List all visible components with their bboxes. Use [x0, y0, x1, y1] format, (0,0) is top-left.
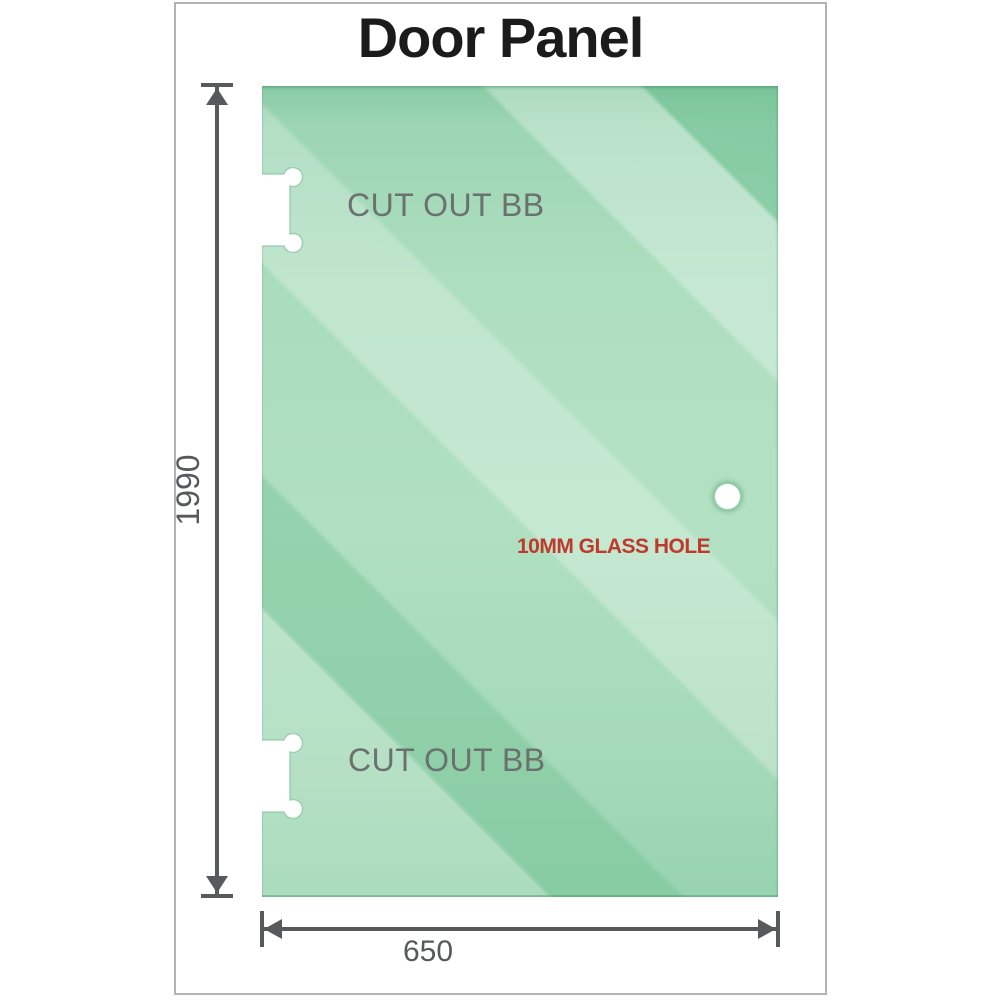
height-dimension-value: 1990 [172, 430, 212, 550]
arrow-right-icon [758, 919, 776, 939]
arrow-down-icon [206, 876, 228, 893]
arrow-left-icon [264, 919, 282, 939]
arrow-up-icon [206, 88, 228, 105]
page-title: Door Panel [174, 10, 827, 66]
width-dimension-line [258, 908, 782, 950]
cutout-top-label: CUT OUT BB [347, 189, 545, 221]
width-dimension-value: 650 [368, 937, 488, 967]
hinge-cutout-top-icon [262, 167, 304, 253]
cutout-bottom-label: CUT OUT BB [348, 744, 546, 776]
door-panel-glass: CUT OUT BB CUT OUT BB 10MM GLASS HOLE [262, 86, 778, 897]
diagram-canvas: Door Panel CUT OUT BB CUT OUT BB 10MM GL… [0, 0, 1000, 1000]
hinge-cutout-shape [262, 167, 303, 252]
glass-hole-icon [715, 484, 740, 509]
hinge-cutout-shape [262, 733, 303, 818]
hinge-cutout-bottom-icon [262, 733, 304, 819]
glass-hole-label: 10MM GLASS HOLE [517, 536, 710, 557]
